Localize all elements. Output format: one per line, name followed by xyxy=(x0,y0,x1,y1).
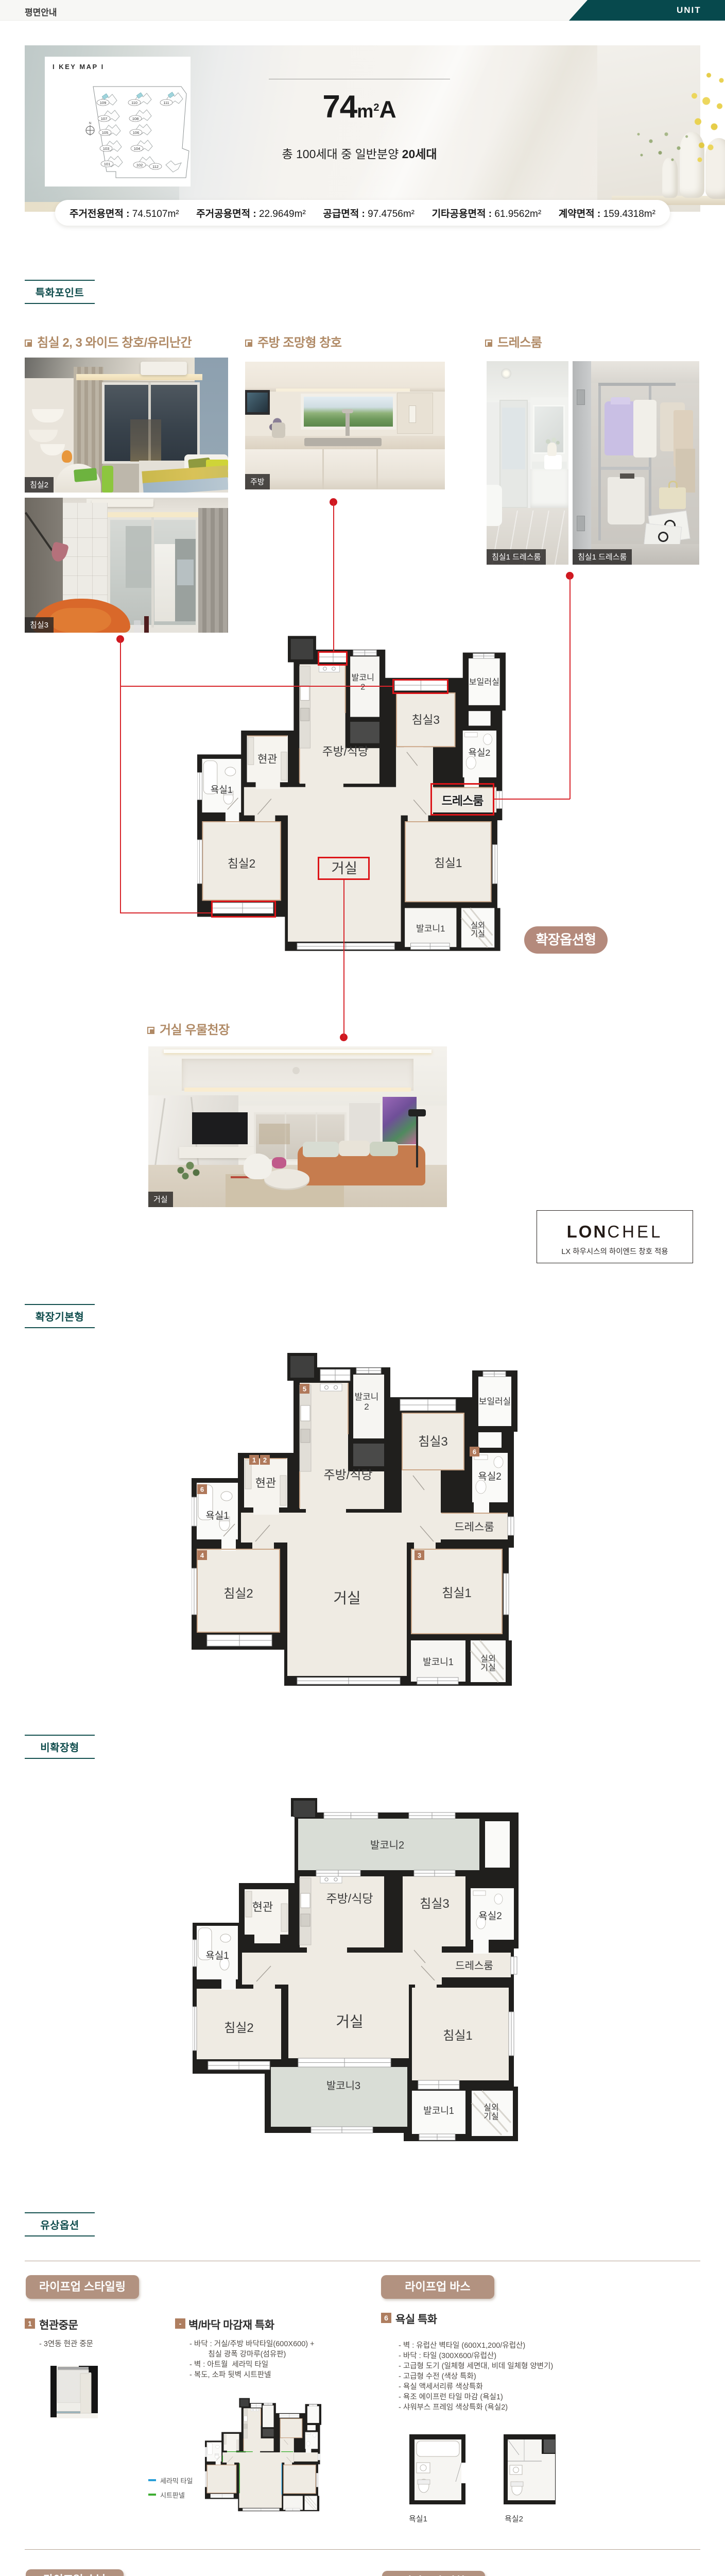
svg-text:드레스룸: 드레스룸 xyxy=(455,1960,493,1972)
svg-text:1: 1 xyxy=(252,1456,256,1464)
svg-text:침실1: 침실1 xyxy=(443,2029,473,2043)
svg-text:거실: 거실 xyxy=(336,2014,363,2030)
svg-text:침실3: 침실3 xyxy=(420,1897,450,1911)
svg-text:욕실1: 욕실1 xyxy=(205,1950,229,1961)
svg-text:발코니1: 발코니1 xyxy=(416,924,445,934)
svg-text:발코니3: 발코니3 xyxy=(326,2080,360,2092)
svg-text:욕실2: 욕실2 xyxy=(468,748,490,758)
svg-text:기실: 기실 xyxy=(484,2112,498,2121)
svg-text:침실2: 침실2 xyxy=(223,1587,253,1601)
svg-text:발코니: 발코니 xyxy=(355,1392,379,1402)
svg-text:실외: 실외 xyxy=(480,1654,495,1664)
svg-text:기실: 기실 xyxy=(471,929,485,938)
svg-text:욕실2: 욕실2 xyxy=(478,1471,502,1482)
svg-text:N: N xyxy=(89,122,91,125)
svg-text:3: 3 xyxy=(418,1552,421,1560)
svg-text:침실3: 침실3 xyxy=(418,1435,448,1449)
svg-text:욕실2: 욕실2 xyxy=(478,1910,502,1922)
svg-text:106: 106 xyxy=(133,130,140,135)
svg-text:107: 107 xyxy=(101,116,108,121)
svg-text:102: 102 xyxy=(136,163,143,167)
svg-text:주방/식당: 주방/식당 xyxy=(326,1892,373,1905)
svg-text:5: 5 xyxy=(303,1385,306,1393)
svg-text:4: 4 xyxy=(200,1552,204,1560)
svg-text:주방/식당: 주방/식당 xyxy=(324,1468,373,1482)
svg-text:침실2: 침실2 xyxy=(228,857,255,870)
svg-text:보일러실: 보일러실 xyxy=(479,1397,511,1406)
svg-text:발코니1: 발코니1 xyxy=(423,1657,454,1667)
svg-text:침실1: 침실1 xyxy=(434,856,462,870)
svg-text:110: 110 xyxy=(131,100,137,105)
svg-text:112: 112 xyxy=(152,164,159,169)
svg-text:드레스룸: 드레스룸 xyxy=(454,1521,494,1533)
svg-text:현관: 현관 xyxy=(257,753,277,765)
svg-text:6: 6 xyxy=(473,1448,476,1456)
svg-text:105: 105 xyxy=(102,130,109,135)
svg-text:거실: 거실 xyxy=(333,1590,360,1607)
svg-text:발코니1: 발코니1 xyxy=(423,2106,454,2116)
svg-text:침실2: 침실2 xyxy=(224,2021,254,2035)
svg-text:주방/식당: 주방/식당 xyxy=(322,744,369,758)
svg-text:욕실1: 욕실1 xyxy=(211,785,233,795)
svg-text:2: 2 xyxy=(360,683,365,692)
svg-text:침실3: 침실3 xyxy=(412,713,440,726)
svg-text:발코니: 발코니 xyxy=(352,673,374,683)
svg-text:6: 6 xyxy=(200,1486,204,1494)
svg-text:보일러실: 보일러실 xyxy=(469,677,499,687)
svg-text:104: 104 xyxy=(134,146,141,151)
svg-text:103: 103 xyxy=(103,146,110,151)
svg-text:2: 2 xyxy=(364,1402,369,1412)
svg-text:101: 101 xyxy=(104,162,111,166)
svg-text:2: 2 xyxy=(263,1456,267,1464)
svg-text:실외: 실외 xyxy=(471,921,485,930)
svg-text:기실: 기실 xyxy=(480,1663,495,1672)
svg-text:108: 108 xyxy=(132,116,139,121)
svg-text:현관: 현관 xyxy=(252,1901,273,1913)
svg-text:111: 111 xyxy=(163,100,169,105)
svg-text:109: 109 xyxy=(100,100,107,105)
svg-text:실외: 실외 xyxy=(484,2103,498,2112)
svg-text:침실1: 침실1 xyxy=(442,1586,472,1600)
svg-text:현관: 현관 xyxy=(255,1477,276,1489)
svg-text:욕실1: 욕실1 xyxy=(205,1510,229,1521)
svg-text:발코니2: 발코니2 xyxy=(370,1839,404,1851)
